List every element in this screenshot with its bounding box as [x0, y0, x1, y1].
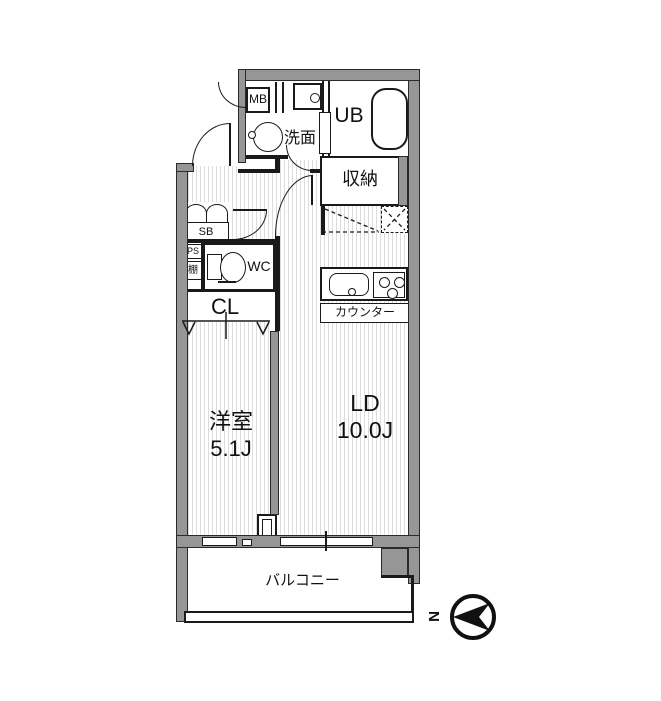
- compass-icon: N: [425, 596, 494, 638]
- refrigerator-dashed-marks: [322, 209, 405, 232]
- floor-plan: MB 洗面 UB 収納 SB PS 棚 WC CL 洋室 5.1J LD 10.…: [0, 0, 661, 701]
- closet-folding-door: [182, 312, 270, 339]
- plan-overlay: N: [0, 0, 661, 701]
- north-label: N: [425, 611, 442, 622]
